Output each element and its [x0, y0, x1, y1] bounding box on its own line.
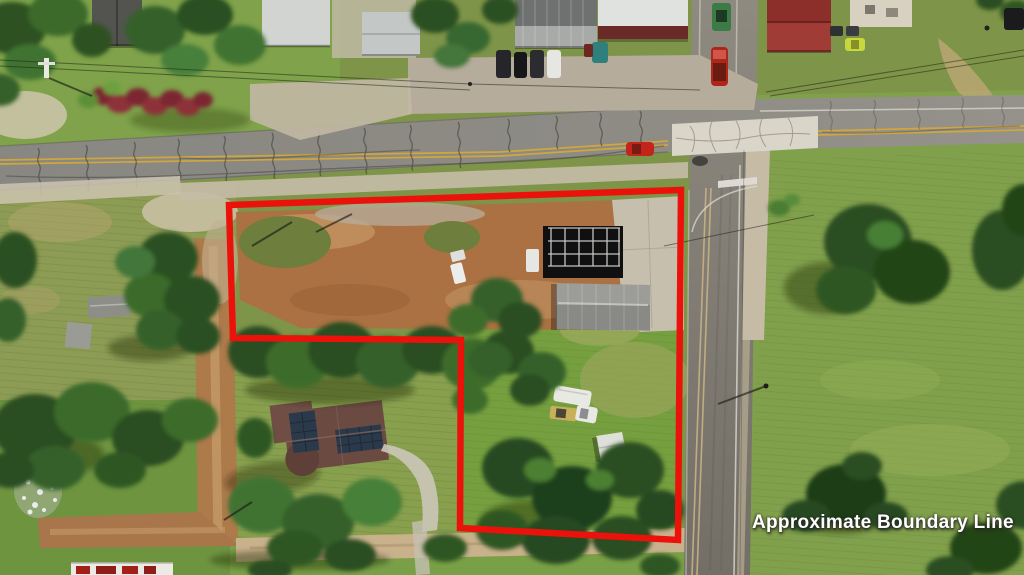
store-with-awning	[598, 0, 688, 42]
red-roof-building	[767, 0, 831, 53]
red-pickup	[711, 47, 728, 86]
aerial-scene	[0, 0, 1024, 575]
aerial-photo: Approximate Boundary Line	[0, 0, 1024, 575]
metal-warehouse	[515, 0, 597, 49]
red-car	[626, 142, 654, 156]
dark-car	[1004, 8, 1024, 30]
boundary-label: Approximate Boundary Line	[752, 512, 1014, 534]
green-tractor	[712, 3, 731, 31]
gray-gable-building	[551, 283, 650, 331]
yellow-car	[845, 38, 865, 51]
striped-roof-building	[71, 563, 173, 575]
tan-house	[850, 0, 912, 27]
